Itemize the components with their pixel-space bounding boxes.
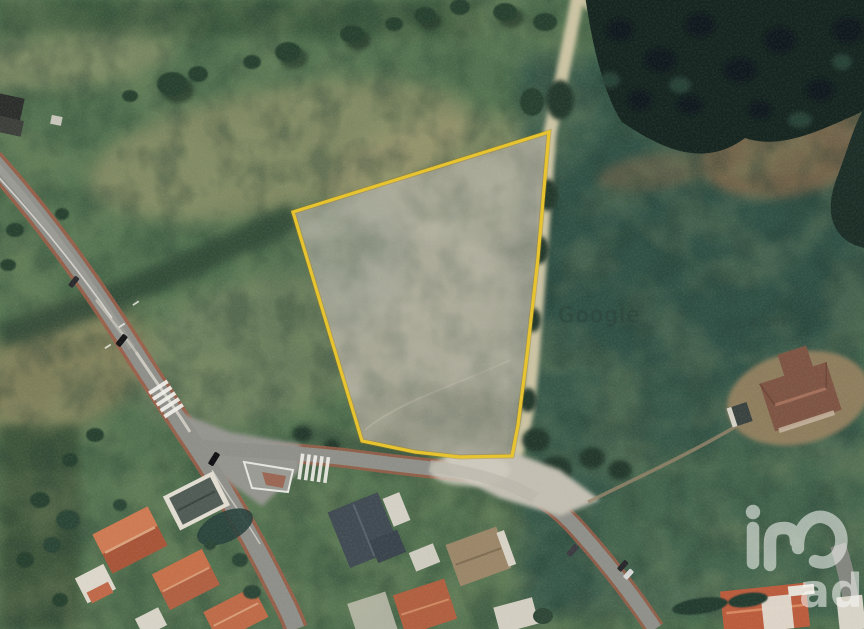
map-attribution-watermark: Google	[558, 303, 641, 327]
photo-grain	[0, 0, 864, 629]
copyright-watermark: © 202	[748, 316, 789, 329]
iad-logo-text: ad	[799, 564, 863, 618]
aerial-photo: Google © 202 ad	[0, 0, 864, 629]
satellite-view: Google © 202 ad	[0, 0, 864, 629]
